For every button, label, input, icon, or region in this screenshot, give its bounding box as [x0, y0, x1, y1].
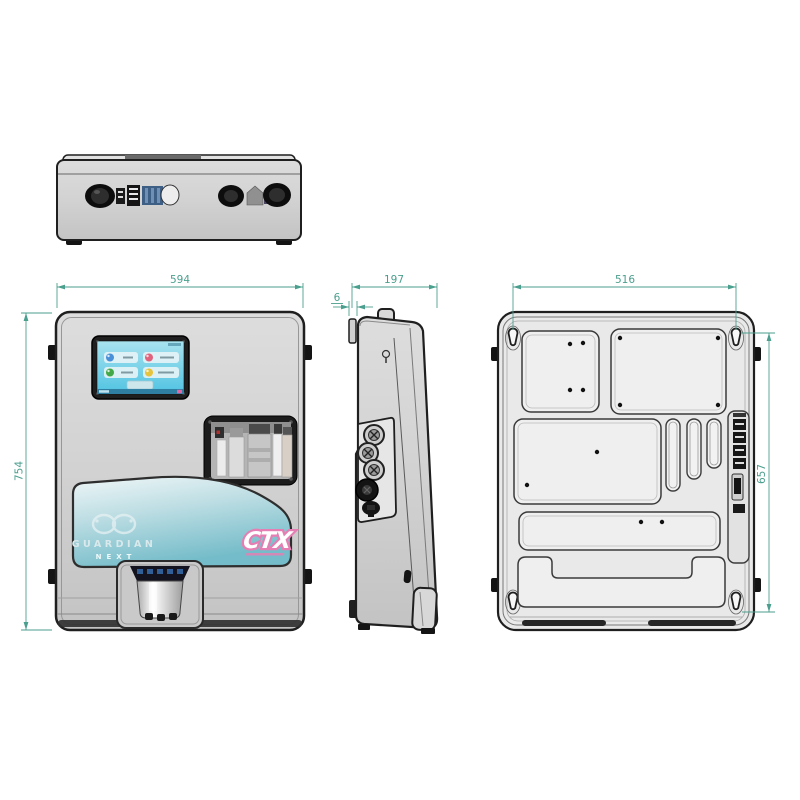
- measuring-cell-cup: [137, 581, 183, 618]
- dim-front-height: 754: [14, 313, 53, 630]
- top-view: [57, 155, 301, 245]
- back-panel-top-right: [611, 329, 726, 414]
- measuring-cell: [117, 561, 203, 628]
- screen-taskbar: [97, 389, 184, 394]
- screen-icon-red: [145, 354, 153, 362]
- dim-side-depth-label: 197: [384, 274, 404, 286]
- technical-drawing-canvas: GUARDIAN NEXT CTX: [0, 0, 800, 800]
- dim-mount-width-label: 516: [615, 274, 635, 286]
- brand-text-next: NEXT: [96, 553, 137, 561]
- dim-front-width: 594: [57, 274, 303, 308]
- ctx-logo-text: CTX: [242, 528, 295, 554]
- dim-mount-offset-label: 6: [334, 292, 341, 304]
- drawing-svg: GUARDIAN NEXT CTX: [0, 0, 800, 800]
- touchscreen: [92, 336, 189, 399]
- ctx-logo-tagline: [246, 553, 284, 556]
- brand-text-guardian: GUARDIAN: [72, 539, 157, 550]
- ctx-logo: CTX: [241, 528, 294, 555]
- reagent-window: [204, 416, 297, 485]
- side-view: [349, 309, 437, 634]
- front-view: GUARDIAN NEXT CTX: [48, 312, 312, 630]
- dim-mount-height-label: 657: [756, 464, 768, 484]
- back-panel-top-left: [522, 331, 599, 412]
- side-wall-bracket-top: [349, 319, 356, 343]
- side-bottom-bracket: [412, 587, 437, 630]
- screen-icon-green: [106, 369, 114, 377]
- dim-front-height-label: 754: [14, 461, 26, 481]
- back-panel-middle: [514, 419, 661, 504]
- back-bottom-bar-right: [648, 620, 736, 626]
- screen-icon-yellow: [145, 369, 153, 377]
- dim-front-width-label: 594: [170, 274, 190, 286]
- screen-icon-blue: [106, 354, 114, 362]
- screen-button: [127, 381, 153, 389]
- back-bottom-bar-left: [522, 620, 606, 626]
- back-view: [491, 312, 761, 630]
- side-hook-dark: [403, 570, 411, 584]
- top-ports-right: [218, 183, 291, 207]
- back-panel-wide: [519, 512, 720, 550]
- dim-side-depth: 197: [352, 274, 437, 308]
- back-terminal-channel: [728, 411, 749, 563]
